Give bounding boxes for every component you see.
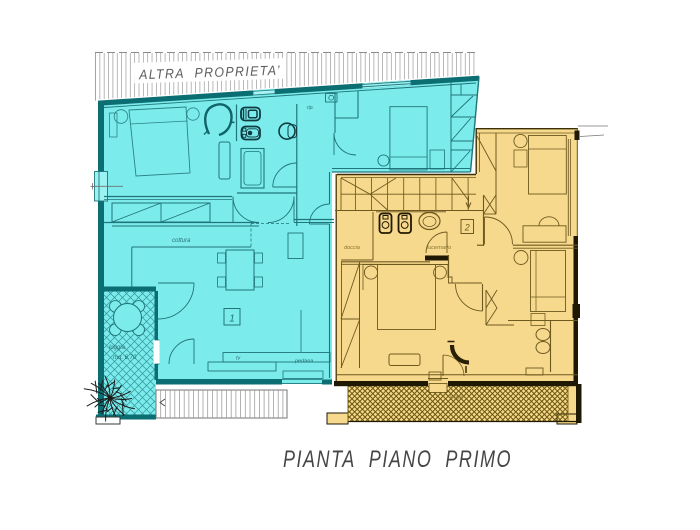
- svg-text:rip.: rip.: [307, 105, 314, 111]
- svg-text:cottura: cottura: [172, 238, 191, 244]
- svg-text:loggia: loggia: [109, 345, 126, 351]
- svg-text:doccia: doccia: [344, 245, 360, 251]
- svg-text:mq. 6.70: mq. 6.70: [113, 355, 137, 361]
- svg-text:PIANTA PIANO PRIMO: PIANTA PIANO PRIMO: [283, 446, 512, 473]
- svg-text:pedana: pedana: [294, 359, 313, 365]
- svg-text:2: 2: [464, 223, 470, 233]
- svg-text:lucernario: lucernario: [427, 245, 451, 251]
- svg-text:loggia: loggia: [450, 395, 464, 401]
- svg-text:1: 1: [229, 314, 235, 325]
